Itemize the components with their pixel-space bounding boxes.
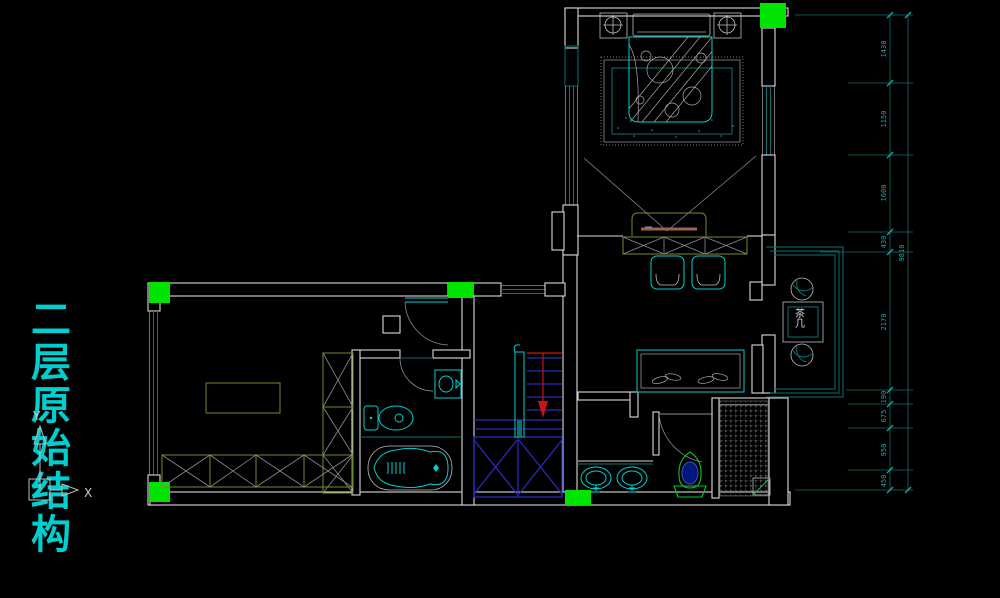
window-bedroom-left	[566, 86, 578, 205]
wall-right-outer	[769, 398, 788, 505]
column-marker	[149, 482, 170, 502]
column-marker	[565, 490, 591, 505]
window-leftroom-left	[150, 311, 158, 475]
wall-bath2-top-a	[578, 392, 633, 400]
wall-bath2-stub	[630, 392, 638, 417]
bed-quilt	[618, 37, 736, 122]
wall-bath1-top-a	[355, 350, 400, 358]
chair-seat	[656, 274, 679, 285]
ucs-x-arrowhead	[62, 484, 78, 496]
staircase[interactable]	[474, 345, 562, 497]
vanity-counter[interactable]	[578, 461, 653, 492]
wall-balcony-left-upper	[762, 235, 775, 285]
dim-label-3[interactable]: 430	[880, 236, 888, 249]
wardrobe-outline	[323, 353, 353, 493]
chair-seat	[697, 274, 720, 285]
window-hall-top	[501, 286, 545, 294]
stair-railing	[514, 345, 524, 437]
dim-label-7[interactable]: 950	[880, 444, 888, 457]
balcony-chair-top[interactable]	[791, 278, 813, 300]
wall-balcony-notch	[750, 282, 762, 300]
tub-outer	[368, 446, 452, 490]
wall-leftroom-right	[462, 296, 474, 505]
wall-ledge-left	[552, 212, 564, 250]
toilet-right[interactable]	[674, 452, 706, 497]
desk-outline	[637, 350, 744, 392]
cabinet-x	[623, 237, 747, 254]
rug-fringe	[601, 57, 743, 145]
chair-swirl	[793, 280, 813, 296]
door-arc	[400, 358, 433, 391]
door-leftroom[interactable]	[405, 298, 448, 345]
toilet-drain	[395, 414, 403, 422]
dim-label-4[interactable]: 2170	[880, 314, 888, 331]
sink-right	[617, 467, 647, 492]
door-arc	[659, 414, 702, 462]
window-bedroom-right	[763, 86, 775, 155]
nightstand-right[interactable]	[714, 13, 741, 38]
chair-swirl	[793, 346, 813, 362]
sink-left	[581, 467, 611, 492]
balcony	[766, 247, 843, 397]
rug-outer	[604, 60, 740, 142]
chair-outline	[651, 256, 684, 289]
wall-hall-top-a	[473, 283, 501, 296]
basin-tap	[456, 380, 460, 388]
tv-cabinet-block[interactable]	[623, 213, 747, 254]
ucs-y-label: Y	[32, 409, 41, 423]
balcony-line-2	[770, 251, 839, 393]
tea-table-label: 茶几	[793, 307, 805, 329]
column-leftroom	[383, 316, 400, 333]
basin-small[interactable]	[435, 370, 461, 398]
wall-hall-top-b	[545, 283, 565, 296]
toilet-bowl	[379, 406, 413, 430]
armchair-right[interactable]	[692, 256, 725, 289]
wall-bedroom-left-upper	[565, 8, 578, 48]
wall-balcony-left-lower	[762, 335, 775, 393]
rug-dots	[617, 117, 734, 138]
dimension-extension-lines	[795, 15, 913, 490]
door-bath1[interactable]	[400, 358, 433, 391]
table-outline	[206, 383, 280, 413]
cad-canvas[interactable]: 茶几	[0, 0, 1000, 512]
wall-bedroom-right-upper	[762, 28, 775, 86]
wall-shower-left	[712, 398, 719, 498]
balcony-chair-bottom[interactable]	[791, 344, 813, 366]
wall-deskroom-right	[752, 345, 763, 393]
door-arc	[405, 302, 448, 345]
toilet-seat	[682, 462, 698, 484]
dim-label-8[interactable]: 450	[880, 475, 888, 488]
tub-drain	[433, 464, 439, 472]
bed-headboard	[633, 14, 710, 36]
stair-winders	[474, 437, 562, 497]
desk-slippers	[651, 372, 728, 385]
wall-bath1-top-b	[433, 350, 470, 358]
ucs-x-label: X	[84, 486, 92, 500]
nightstand-left[interactable]	[600, 13, 627, 38]
wardrobe-x	[323, 353, 353, 493]
bathtub[interactable]	[368, 446, 452, 490]
tea-table-block[interactable]: 茶几	[783, 302, 823, 342]
desk-inner	[641, 354, 740, 388]
chair-outline	[692, 256, 725, 289]
wall-bedroom-left-teal	[565, 46, 578, 86]
toilet-button	[370, 417, 372, 419]
dim-label-2[interactable]: 1600	[880, 185, 888, 202]
column-marker	[760, 3, 786, 28]
dim-label-total[interactable]: 9810	[898, 245, 906, 262]
wall-bedroom-top	[565, 8, 788, 16]
dim-label-5[interactable]: 190	[880, 391, 888, 404]
walls	[148, 8, 790, 505]
column-marker	[149, 282, 170, 303]
dim-label-0[interactable]: 1430	[880, 41, 888, 58]
balcony-line-1	[766, 247, 843, 397]
wardrobe-column[interactable]	[323, 353, 353, 493]
wall-bedroom-left-lower	[563, 205, 578, 255]
ucs-y-arrowhead	[34, 426, 46, 444]
wall-bath2-inner	[653, 412, 659, 455]
armchair-left[interactable]	[651, 256, 684, 289]
ceiling-lines	[584, 156, 756, 231]
dimension-chain[interactable]: 1430 1150 1600 430 2170 190 675 950 450 …	[795, 12, 913, 493]
shower-grid	[720, 401, 768, 496]
stair-treads	[474, 358, 562, 429]
basin-bowl	[439, 376, 453, 392]
tv-stand	[632, 213, 706, 236]
stair-direction-arrow	[527, 353, 562, 418]
rug-inner	[612, 68, 732, 134]
bed-block[interactable]	[601, 14, 743, 145]
bed-outline	[629, 37, 712, 122]
ucs-icon: Y X	[29, 409, 92, 500]
desk-block[interactable]	[637, 350, 744, 392]
wall-leftroom-top	[150, 283, 448, 296]
column-marker	[448, 282, 473, 298]
dim-label-6[interactable]: 675	[880, 410, 888, 423]
dim-label-1[interactable]: 1150	[880, 111, 888, 128]
toilet-left[interactable]	[364, 406, 413, 430]
shower-area	[720, 401, 768, 496]
tub-faucet-hatch	[388, 462, 404, 474]
leftroom-table[interactable]	[206, 383, 280, 413]
wall-bedroom-right-lower	[762, 155, 775, 240]
